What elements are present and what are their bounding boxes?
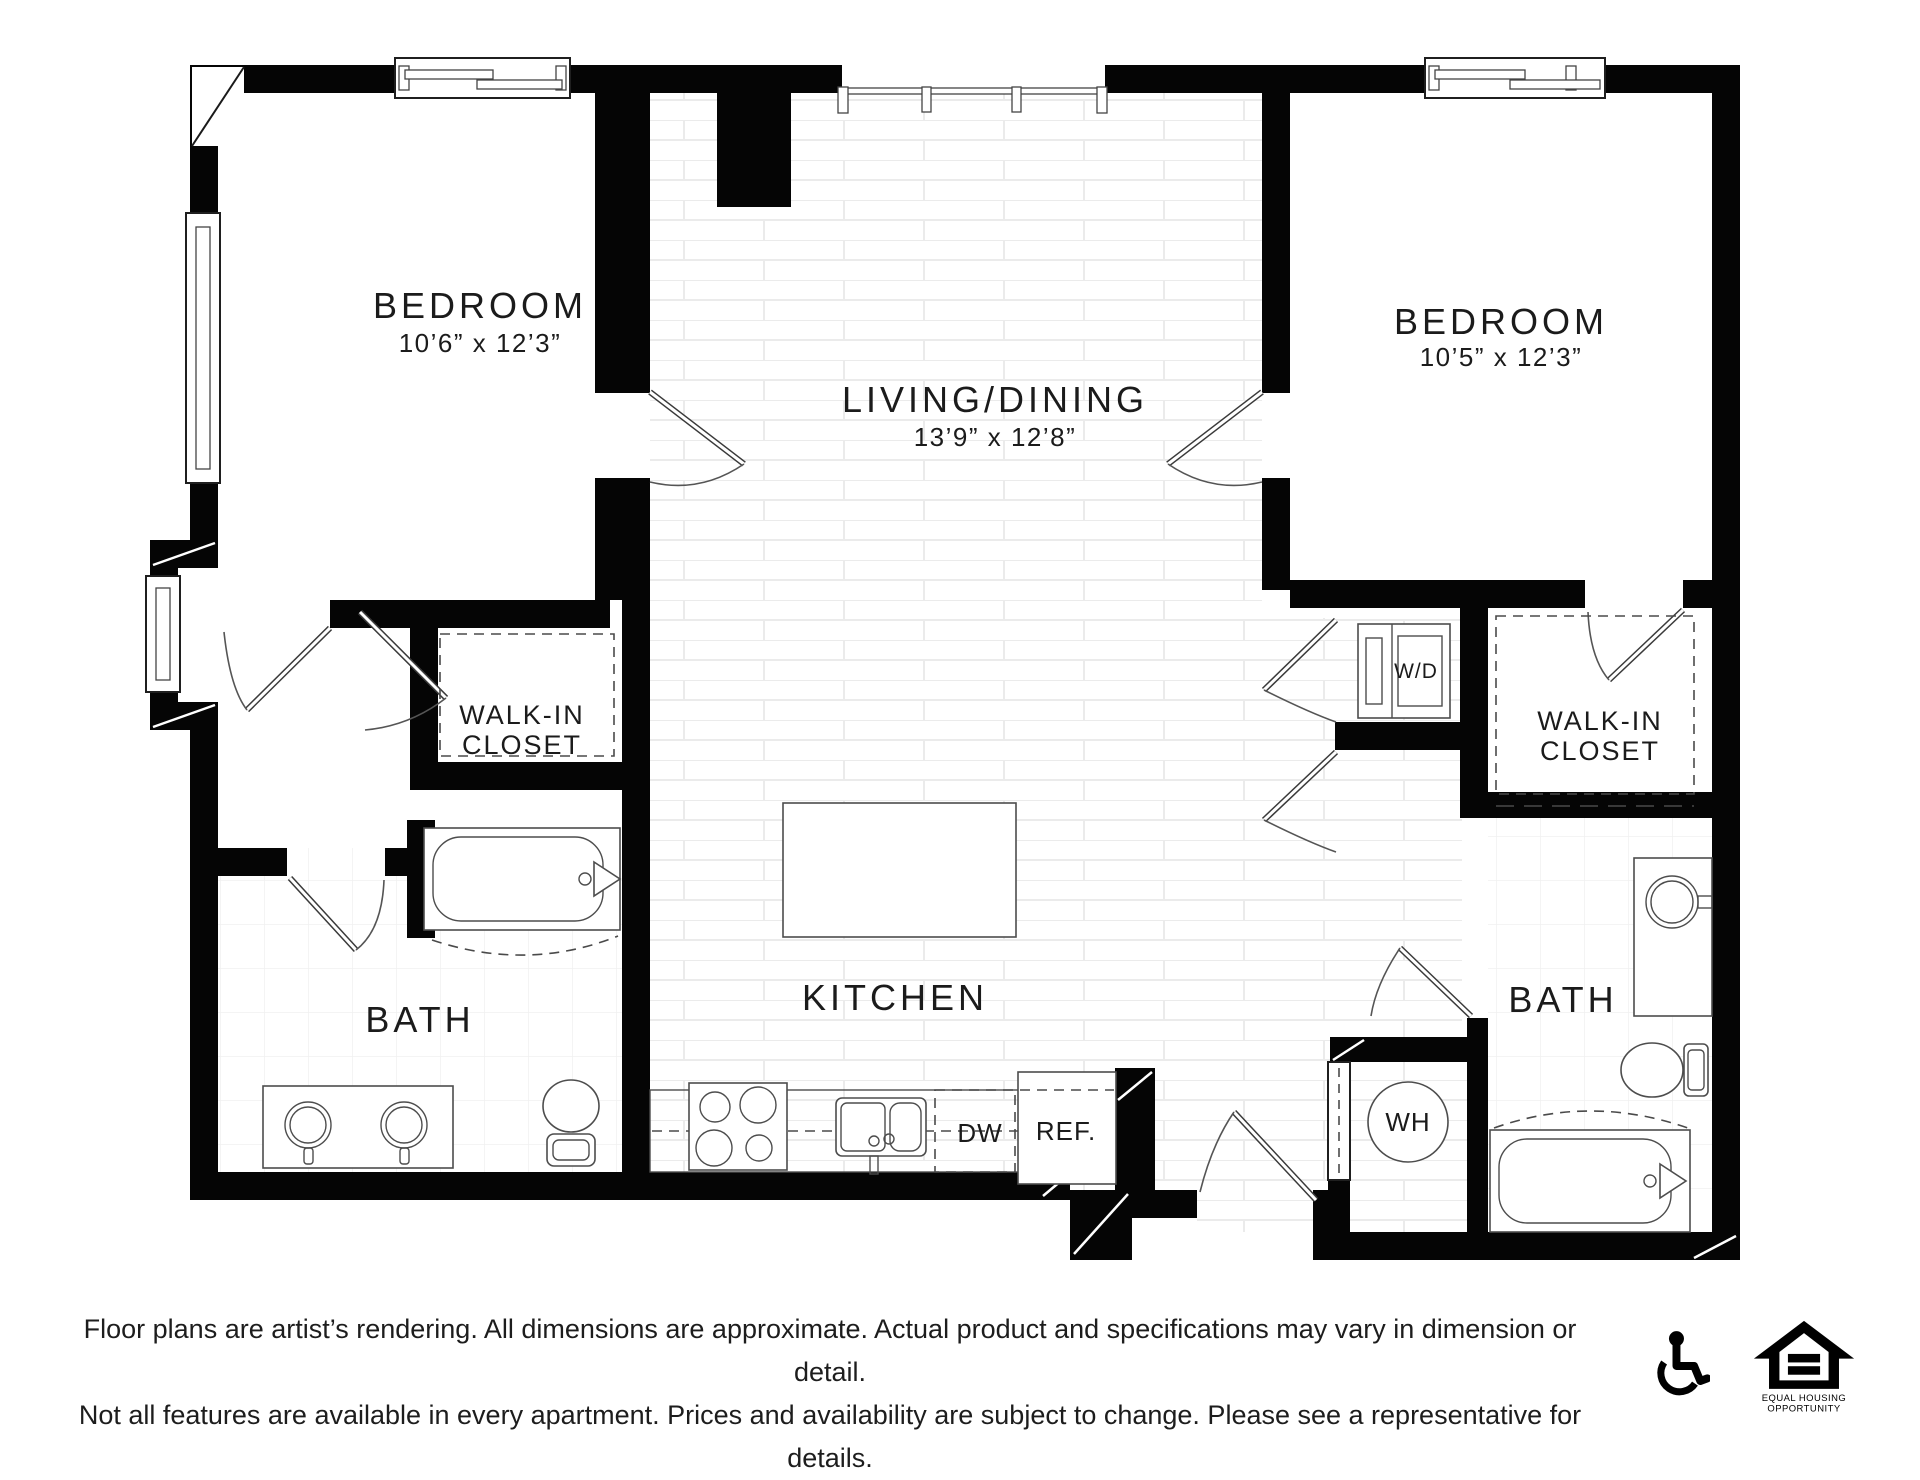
vanity-left	[263, 1086, 453, 1168]
window-bedroom-left-side	[186, 213, 220, 483]
living-dining-label: LIVING/DINING	[842, 379, 1148, 420]
closet-left-label-line1: WALK-IN	[459, 700, 585, 730]
equal-housing-text-line1: EQUAL HOUSING	[1762, 1393, 1846, 1404]
toilet-right	[1621, 1043, 1708, 1097]
equal-housing-text-line2: OPPORTUNITY	[1767, 1404, 1840, 1415]
bedroom-right-dims: 10’5” x 12’3”	[1420, 342, 1583, 372]
disclaimer-line-2: Not all features are available in every …	[60, 1394, 1600, 1480]
kitchen-label: KITCHEN	[802, 977, 988, 1018]
closet-left-label-line2: CLOSET	[462, 730, 582, 760]
living-dining-dims: 13’9” x 12’8”	[914, 422, 1077, 452]
floor-plan: BEDROOM 10’6” x 12’3” LIVING/DINING 13’9…	[0, 0, 1920, 1440]
disclaimer: Floor plans are artist’s rendering. All …	[60, 1308, 1600, 1480]
kitchen-island	[783, 803, 1016, 937]
vanity-right	[1634, 858, 1712, 1016]
water-heater-label: WH	[1385, 1107, 1430, 1137]
bedroom-right-label: BEDROOM	[1394, 301, 1608, 342]
disclaimer-line-1: Floor plans are artist’s rendering. All …	[60, 1308, 1600, 1394]
washer-dryer-label: W/D	[1394, 660, 1438, 683]
door-closet-right	[1588, 610, 1683, 680]
door-bedroom-left-hall	[224, 628, 330, 710]
closet-right-label-line1: WALK-IN	[1537, 706, 1663, 736]
window-bedroom-right-top	[1425, 58, 1605, 98]
window-bedroom-left-top	[395, 58, 570, 98]
bath-left-label: BATH	[365, 999, 474, 1040]
floor-plan-page: { "plan": { "bedroom_left": {"label": "B…	[0, 0, 1920, 1440]
bedroom-left-label: BEDROOM	[373, 285, 587, 326]
stove	[689, 1083, 787, 1170]
toilet-left	[543, 1080, 599, 1166]
bath-right-label: BATH	[1508, 979, 1617, 1020]
refrigerator-label: REF.	[1036, 1116, 1096, 1146]
water-heater-closet-door	[1328, 1062, 1350, 1180]
wheelchair-accessible-icon	[1650, 1326, 1710, 1406]
dishwasher-label: DW	[957, 1118, 1002, 1148]
bedroom-left-dims: 10’6” x 12’3”	[399, 328, 562, 358]
equal-housing-opportunity-icon: EQUAL HOUSING OPPORTUNITY	[1752, 1318, 1856, 1422]
window-bay-left-side	[146, 576, 180, 692]
closet-right-label-line2: CLOSET	[1540, 736, 1660, 766]
